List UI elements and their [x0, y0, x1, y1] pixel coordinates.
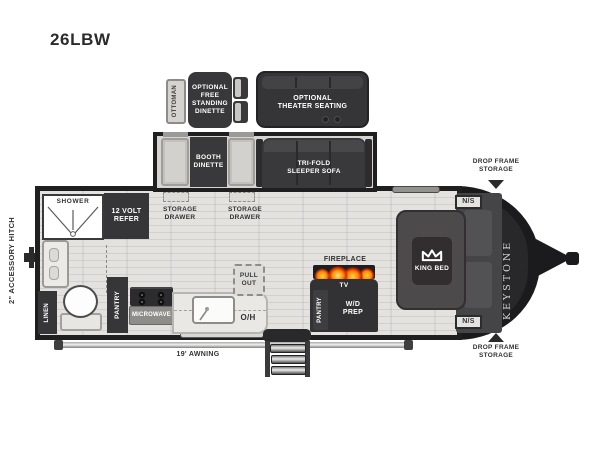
king-bed-label: KING BED [415, 265, 449, 273]
floorplan-canvas: 26LBW 2" ACCESSORY HITCH KEYSTONE BOOTH … [0, 0, 600, 450]
kitchen-pantry-label: PANTRY [114, 291, 122, 319]
toilet-bowl [63, 285, 98, 318]
nightstand-top-label: N/S [462, 198, 475, 206]
booth-dinette-table: BOOTH DINETTE [190, 137, 227, 187]
sleeper-sofa-labelwrap: TRI-FOLD SLEEPER SOFA [262, 152, 366, 184]
theater-divider-1 [295, 77, 297, 88]
vanity-pull-1 [49, 248, 59, 262]
microwave-label: MICROWAVE [132, 312, 171, 319]
sleeper-sofa-label: TRI-FOLD SLEEPER SOFA [287, 160, 340, 176]
awning-cap-right [404, 340, 413, 350]
dinette-bench-left [161, 138, 189, 186]
entry-step-3 [271, 366, 306, 375]
dinette-bench-right [228, 138, 255, 186]
wd-prep: W/D PREP [331, 291, 375, 327]
arrow-down-icon [488, 180, 504, 189]
range-cooktop [130, 287, 173, 306]
entry-step-2 [271, 355, 306, 364]
page-title: 26LBW [50, 30, 111, 50]
sofa-armrest-right [365, 139, 372, 187]
vanity-pull-2 [49, 266, 59, 280]
accessory-hitch-label: 2" ACCESSORY HITCH [8, 192, 22, 328]
shower-label: SHOWER [44, 198, 102, 206]
accessory-hitch-plate [29, 247, 34, 268]
nightstand-top: N/S [455, 195, 482, 209]
drop-frame-storage-top-label: DROP FRAME STORAGE [463, 158, 529, 173]
fireplace-label: FIREPLACE [305, 256, 385, 264]
wardrobe-panel-2 [464, 262, 492, 308]
kitchen-pantry: PANTRY [107, 277, 128, 333]
hitch-coupler [566, 252, 579, 265]
awning-cap-left [54, 340, 63, 350]
crown-icon [421, 249, 443, 262]
entry-platform [263, 329, 311, 342]
king-bed-badge: KING BED [412, 237, 452, 285]
pull-out: PULL OUT [233, 264, 265, 296]
pull-out-label: PULL OUT [240, 272, 258, 287]
shower-pan-icon [45, 206, 101, 238]
free-standing-dinette-label: OPTIONAL FREE STANDING DINETTE [192, 84, 228, 115]
refrigerator-label: 12 VOLT REFER [112, 208, 142, 225]
slide-window-left [163, 132, 188, 137]
wardrobe-panel-1 [464, 210, 492, 256]
faucet-icon [197, 306, 211, 322]
entertainment-pantry: PANTRY [313, 290, 328, 330]
theater-backrest [262, 76, 363, 89]
ottoman-label: OTTOMAN [172, 85, 179, 117]
window-top [392, 186, 440, 193]
storage-drawer-left-label: STORAGE DRAWER [149, 206, 211, 221]
cupholder-1 [322, 116, 329, 123]
theater-divider-2 [329, 77, 331, 88]
storage-drawer-right-label: STORAGE DRAWER [214, 206, 276, 221]
tv-label: TV [310, 282, 378, 290]
cupholder-2 [334, 116, 341, 123]
slide-window-right [229, 132, 254, 137]
microwave: MICROWAVE [129, 306, 174, 325]
awning-label: 19' AWNING [158, 351, 238, 359]
nightstand-bottom-label: N/S [462, 318, 475, 326]
fireplace-flames [313, 265, 375, 279]
storage-drawer-left-box [163, 192, 189, 202]
sofa-backrest [264, 140, 364, 152]
linen-label: LINEN [44, 303, 51, 323]
awning-bar [56, 342, 412, 348]
arrow-up-icon [488, 333, 504, 342]
wd-prep-label: W/D PREP [343, 301, 363, 318]
nightstand-bottom: N/S [455, 315, 482, 329]
brand-text: KEYSTONE [502, 222, 518, 338]
entertainment-pantry-label: PANTRY [317, 297, 324, 323]
booth-dinette-label: BOOTH DINETTE [194, 154, 224, 170]
theater-seating-label: OPTIONAL THEATER SEATING [258, 95, 367, 112]
drop-frame-storage-bottom-label: DROP FRAME STORAGE [463, 344, 529, 359]
overhead-label: O/H [234, 313, 262, 322]
entry-step-1 [270, 344, 306, 353]
free-standing-dinette: OPTIONAL FREE STANDING DINETTE [188, 72, 232, 128]
shower: SHOWER [42, 194, 104, 240]
ottoman: OTTOMAN [166, 79, 186, 124]
refrigerator: 12 VOLT REFER [104, 193, 149, 239]
storage-drawer-right-box [229, 192, 255, 202]
dinette-chair-2-seat [235, 103, 241, 121]
dinette-chair-1-seat [235, 79, 241, 97]
linen-cabinet: LINEN [38, 291, 57, 334]
